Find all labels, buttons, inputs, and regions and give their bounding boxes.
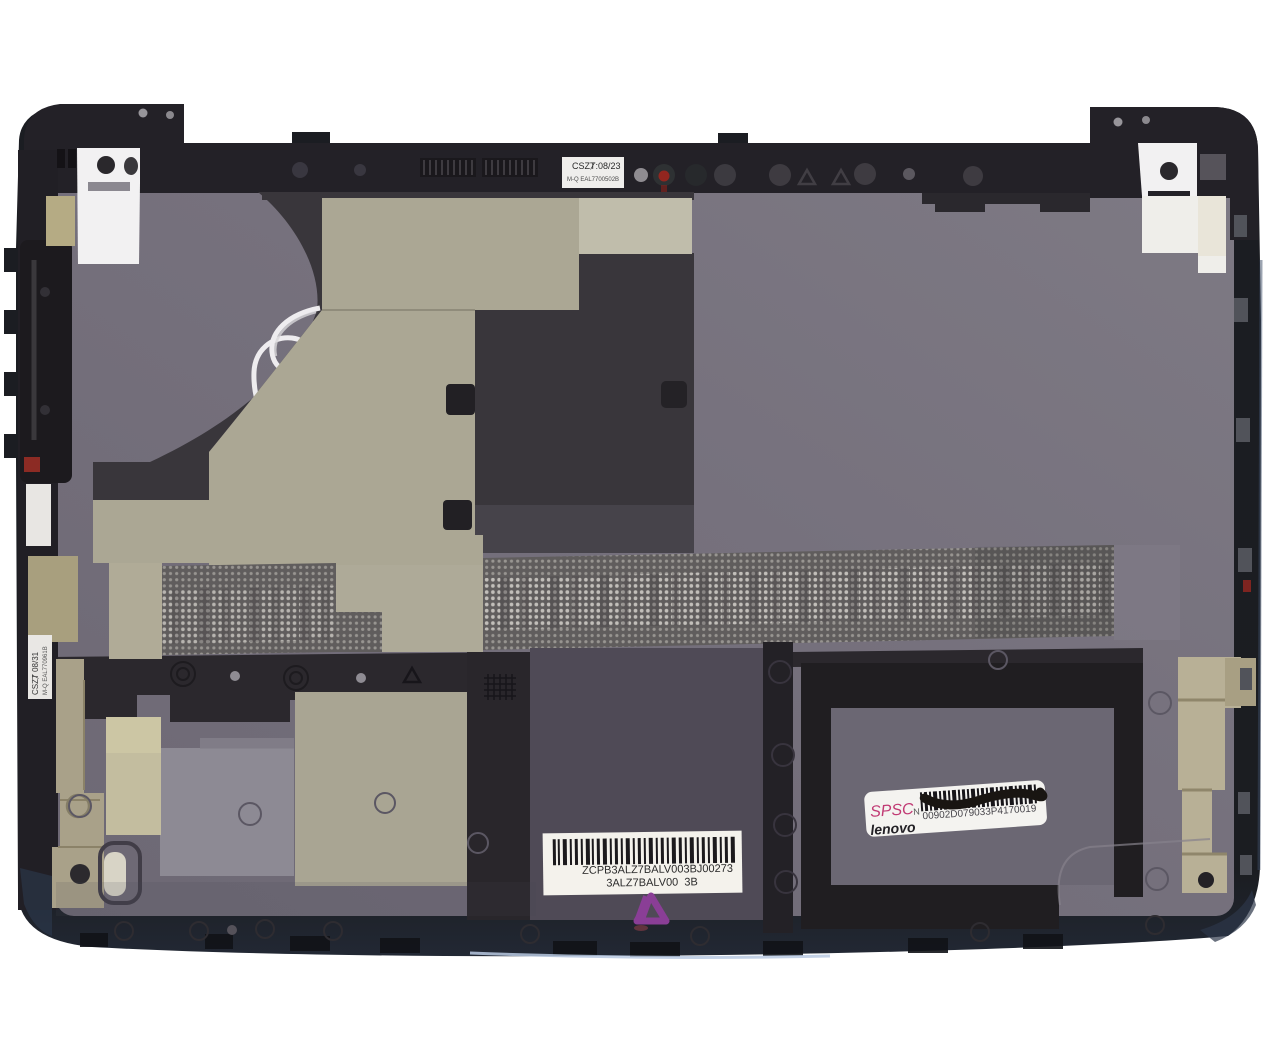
- svg-text:lenovo: lenovo: [870, 819, 917, 838]
- svg-text:N: N: [913, 806, 920, 816]
- svg-text:SPSC: SPSC: [870, 801, 915, 821]
- svg-text:CSZȾ:08/23: CSZȾ:08/23: [572, 161, 621, 171]
- svg-text:M-Q EAL7700502B: M-Q EAL7700502B: [567, 177, 619, 183]
- svg-text:ZCPB3ALZ7BALV003BJ00273: ZCPB3ALZ7BALV003BJ00273: [582, 863, 733, 877]
- svg-text:M-Q EAL770961B: M-Q EAL770961B: [43, 646, 49, 695]
- svg-text:3ALZ7BALV00 3B: 3ALZ7BALV00 3B: [606, 876, 698, 889]
- svg-text:CSZȾ 08/31: CSZȾ 08/31: [31, 651, 40, 695]
